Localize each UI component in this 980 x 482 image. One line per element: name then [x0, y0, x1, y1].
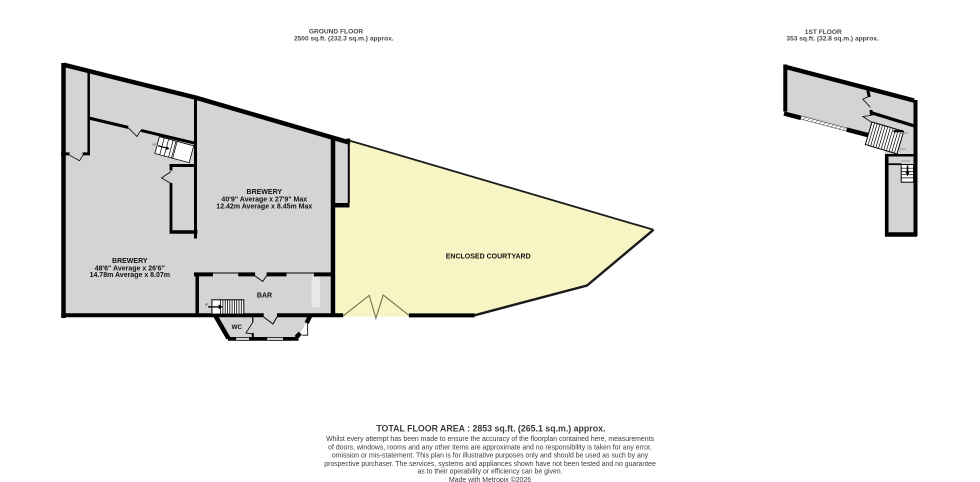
svg-text:12.42m Average x 8.45m Max: 12.42m Average x 8.45m Max	[216, 204, 312, 211]
svg-text:2500 sq.ft. (232.3 sq.m.) appr: 2500 sq.ft. (232.3 sq.m.) approx.	[294, 35, 394, 42]
svg-text:WC: WC	[232, 324, 243, 331]
svg-text:14.78m Average x 8.07m: 14.78m Average x 8.07m	[90, 272, 170, 279]
svg-text:BREWERY: BREWERY	[247, 189, 283, 196]
svg-text:UP: UP	[205, 303, 209, 307]
svg-text:prospective purchaser. The ser: prospective purchaser. The services, sys…	[324, 461, 656, 468]
svg-text:BAR: BAR	[257, 293, 272, 300]
svg-text:ENCLOSED COURTYARD: ENCLOSED COURTYARD	[446, 253, 531, 260]
svg-text:omission or mis-statement. Thi: omission or mis-statement. This plan is …	[332, 453, 649, 460]
svg-text:DOWN: DOWN	[897, 147, 905, 151]
svg-text:Whilst every attempt has been: Whilst every attempt has been made to en…	[326, 436, 654, 443]
svg-text:UP: UP	[152, 143, 156, 147]
svg-text:40'9" Average x 27'9" Max: 40'9" Average x 27'9" Max	[221, 196, 307, 203]
svg-text:as to their operability or eff: as to their operability or efficiency ca…	[417, 468, 562, 475]
svg-text:Made with Metropix ©2026: Made with Metropix ©2026	[449, 476, 531, 482]
svg-text:TOTAL FLOOR AREA : 2853 sq.ft.: TOTAL FLOOR AREA : 2853 sq.ft. (265.1 sq…	[376, 423, 605, 433]
svg-text:DOWN: DOWN	[900, 131, 908, 135]
svg-text:of doors, windows, rooms and a: of doors, windows, rooms and any other i…	[328, 445, 652, 452]
svg-text:BREWERY: BREWERY	[112, 258, 148, 265]
svg-text:353 sq.ft. (32.8 sq.m.) approx: 353 sq.ft. (32.8 sq.m.) approx.	[786, 35, 879, 42]
svg-text:DOWN: DOWN	[901, 159, 909, 163]
